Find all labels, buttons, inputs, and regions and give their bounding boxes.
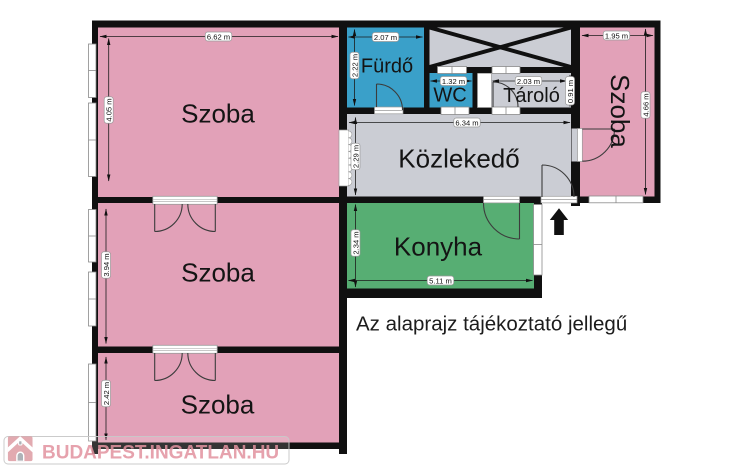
svg-text:WC: WC (433, 85, 466, 107)
svg-text:2.07 m: 2.07 m (374, 33, 397, 42)
svg-text:2.29 m: 2.29 m (352, 145, 361, 168)
svg-text:6.62 m: 6.62 m (207, 33, 230, 42)
svg-text:Közlekedő: Közlekedő (398, 143, 519, 173)
svg-text:Az alaprajz tájékoztató jelleg: Az alaprajz tájékoztató jellegű (356, 313, 627, 336)
svg-text:4.05 m: 4.05 m (105, 98, 114, 121)
svg-text:Szoba: Szoba (181, 98, 255, 128)
svg-text:Szoba: Szoba (605, 74, 635, 148)
svg-text:2.22 m: 2.22 m (351, 54, 360, 77)
svg-text:2.34 m: 2.34 m (352, 231, 361, 254)
svg-text:5.11 m: 5.11 m (429, 277, 452, 286)
svg-text:Szoba: Szoba (181, 257, 255, 287)
svg-text:4.66 m: 4.66 m (642, 93, 651, 116)
svg-text:1.95 m: 1.95 m (605, 32, 628, 41)
svg-text:Szoba: Szoba (181, 390, 255, 420)
svg-text:3.94 m: 3.94 m (102, 253, 111, 276)
svg-text:6.34 m: 6.34 m (455, 119, 478, 128)
svg-text:Tároló: Tároló (503, 85, 560, 107)
svg-text:BUDAPEST.INGATLAN.HU: BUDAPEST.INGATLAN.HU (42, 443, 279, 464)
svg-text:Fürdő: Fürdő (361, 56, 413, 78)
svg-text:2.42 m: 2.42 m (102, 382, 111, 405)
svg-text:0.91 m: 0.91 m (566, 80, 575, 103)
svg-text:Konyha: Konyha (394, 232, 483, 262)
